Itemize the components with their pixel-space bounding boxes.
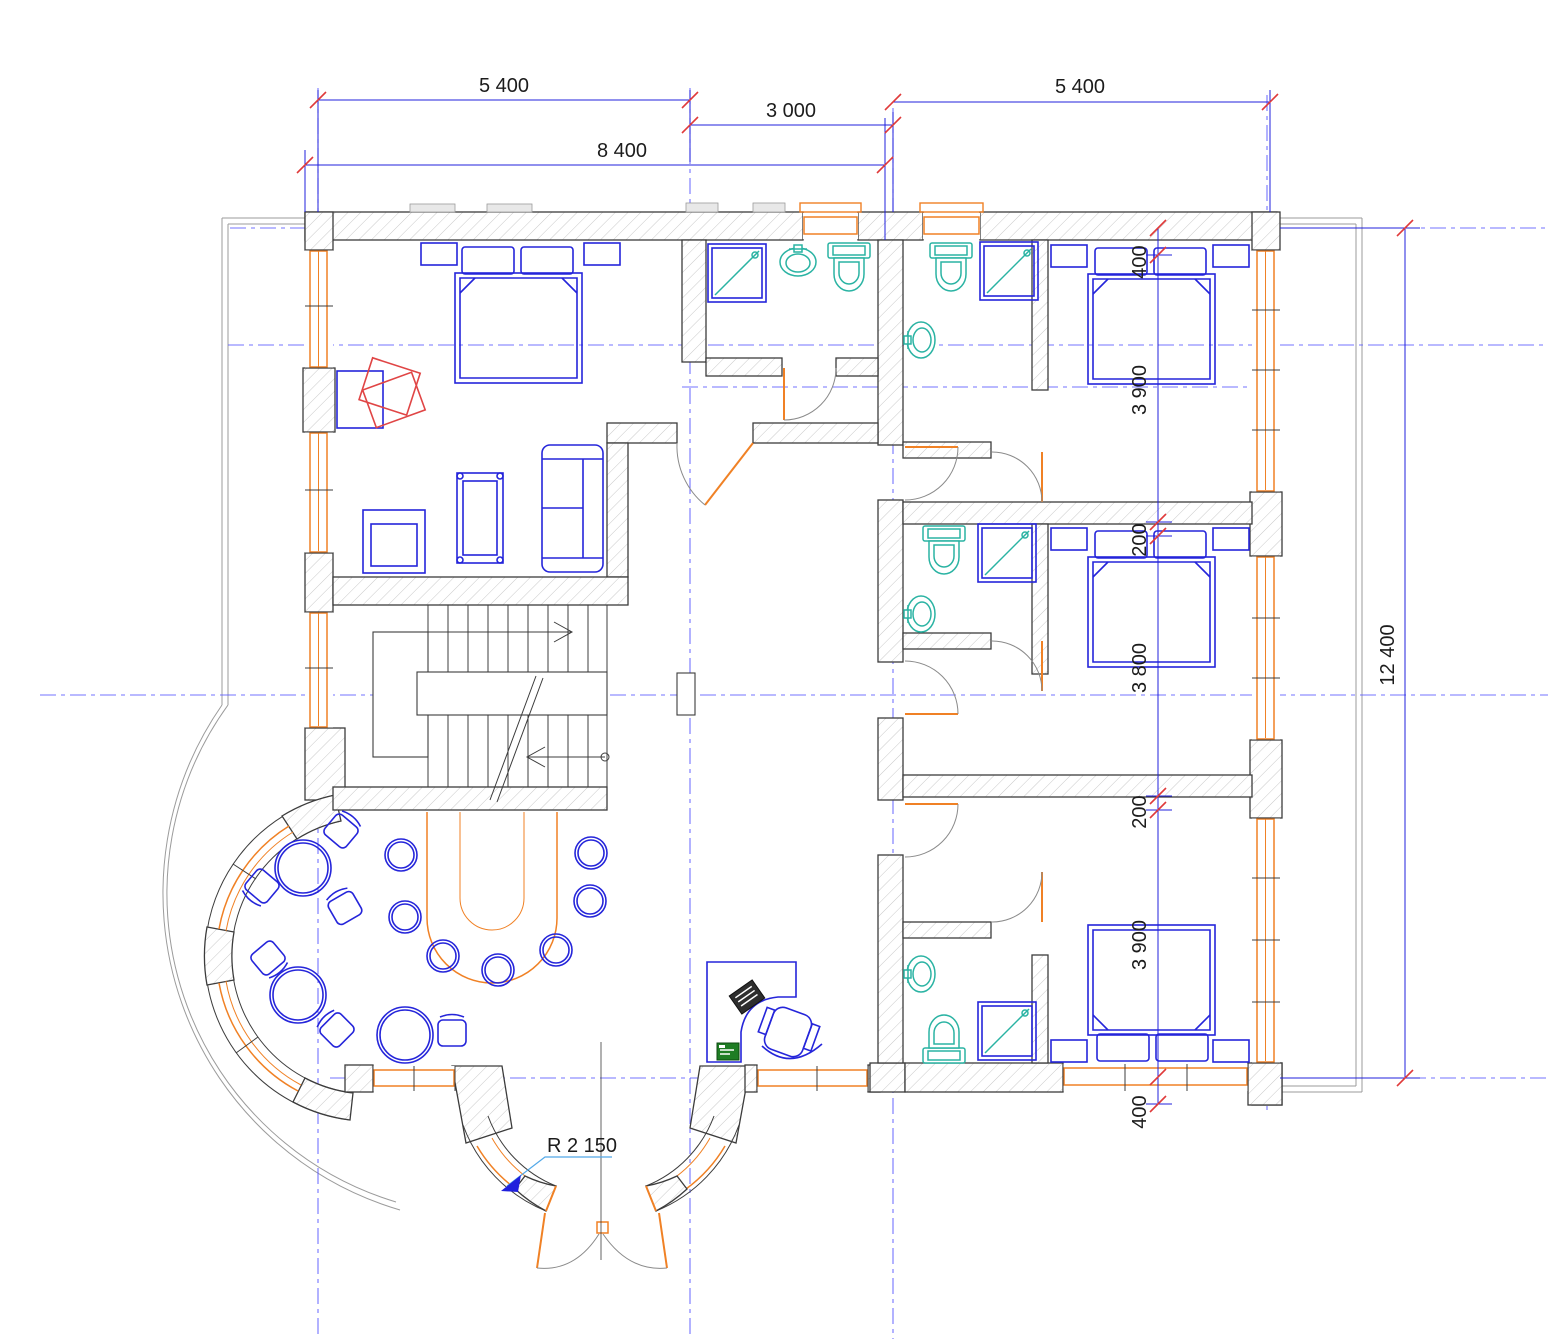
window [1252,250,1280,492]
stool-symbol [540,934,572,966]
bathroom-hall-fixtures [708,243,870,302]
radius-callout: R 2 150 [501,1135,617,1192]
dim-chain-2: 200 [1129,523,1151,556]
round-table-symbol [275,840,331,896]
chair-symbol [314,1007,356,1049]
nightstand-symbol [1051,1040,1087,1062]
toilet-symbol [930,243,972,291]
shower-symbol [978,1002,1036,1060]
chair-symbol [324,885,364,926]
stool-symbol [389,901,421,933]
sofa-symbol [542,445,603,572]
stool-symbol [385,839,417,871]
window [757,1066,868,1091]
dim-chain-5: 3 900 [1129,920,1151,970]
round-table-symbol [377,1007,433,1063]
dim-chain-0: 400 [1129,245,1151,278]
door-bath-3 [992,872,1042,922]
window [800,203,861,239]
dim-chain-3: 3 800 [1129,643,1151,693]
side-table-symbol [363,510,425,573]
window [373,1066,455,1091]
bedroom-1-furniture [337,243,620,573]
bay-window-wall [204,795,353,1120]
nightstand-symbol [1213,245,1249,267]
dim-width-left: 5 400 [479,75,529,97]
window [305,250,333,368]
window [1252,818,1280,1063]
stool-symbol [482,954,514,986]
nightstand-symbol [1051,528,1087,550]
stool-symbol [574,885,606,917]
bar-counter-symbol [427,812,557,983]
coffee-table-symbol [457,473,503,563]
dim-width-right: 5 400 [1055,76,1105,98]
nightstand-symbol [1213,528,1249,550]
window [305,612,333,728]
bathroom-3-fixtures [904,956,1036,1063]
dining-lounge-furniture [239,808,607,1063]
nightstand-symbol [584,243,620,265]
door-bath-hall [784,368,836,420]
nightstand-symbol [421,243,457,265]
dim-chain-1: 3 900 [1129,365,1151,415]
floor-plan-canvas: 5 400 3 000 8 400 5 400 400 3 900 200 3 … [0,0,1548,1339]
dim-entrance-radius: R 2 150 [547,1135,617,1157]
dim-chain-6: 400 [1129,1095,1151,1128]
sink-symbol [904,322,935,358]
printer-symbol [717,1043,739,1060]
door-bedroom-1 [677,443,753,505]
nightstand-symbol [1051,245,1087,267]
shower-symbol [980,242,1038,300]
entrance-double-door [537,1213,667,1268]
toilet-symbol [923,1015,965,1063]
dim-overall-depth: 12 400 [1377,624,1399,685]
sink-symbol [904,596,935,632]
sink-symbol [904,956,935,992]
sink-symbol [780,245,816,276]
hall-column [677,673,695,715]
double-bed-symbol [1088,925,1215,1061]
dim-width-total-left: 8 400 [597,140,647,162]
stool-symbol [427,940,459,972]
armchair-symbol [359,358,425,428]
door-bath-1 [992,452,1042,502]
office-chair-symbol [758,1004,822,1059]
double-bed-symbol [1088,531,1215,667]
floor-plan-page: 5 400 3 000 8 400 5 400 400 3 900 200 3 … [0,0,1548,1339]
toilet-symbol [828,243,870,291]
staircase [373,605,609,802]
office-corner [707,962,822,1062]
double-bed-symbol [1088,248,1215,384]
computer-symbol [729,980,765,1014]
bathroom-2-fixtures [904,524,1036,632]
door-hall-vestibule-2 [905,661,958,714]
toilet-symbol [923,526,965,574]
chair-symbol [438,1015,466,1047]
window [920,203,983,239]
nightstand-symbol [1213,1040,1249,1062]
dim-chain-4: 200 [1129,795,1151,828]
dim-width-center: 3 000 [766,100,816,122]
shower-symbol [708,244,766,302]
double-bed-symbol [455,247,582,383]
shower-symbol [978,524,1036,582]
stool-symbol [575,837,607,869]
window [1252,556,1280,740]
window [1063,1064,1248,1091]
bathroom-1-fixtures [904,242,1038,358]
door-hall-vestibule-3 [905,804,958,857]
window [305,432,333,553]
